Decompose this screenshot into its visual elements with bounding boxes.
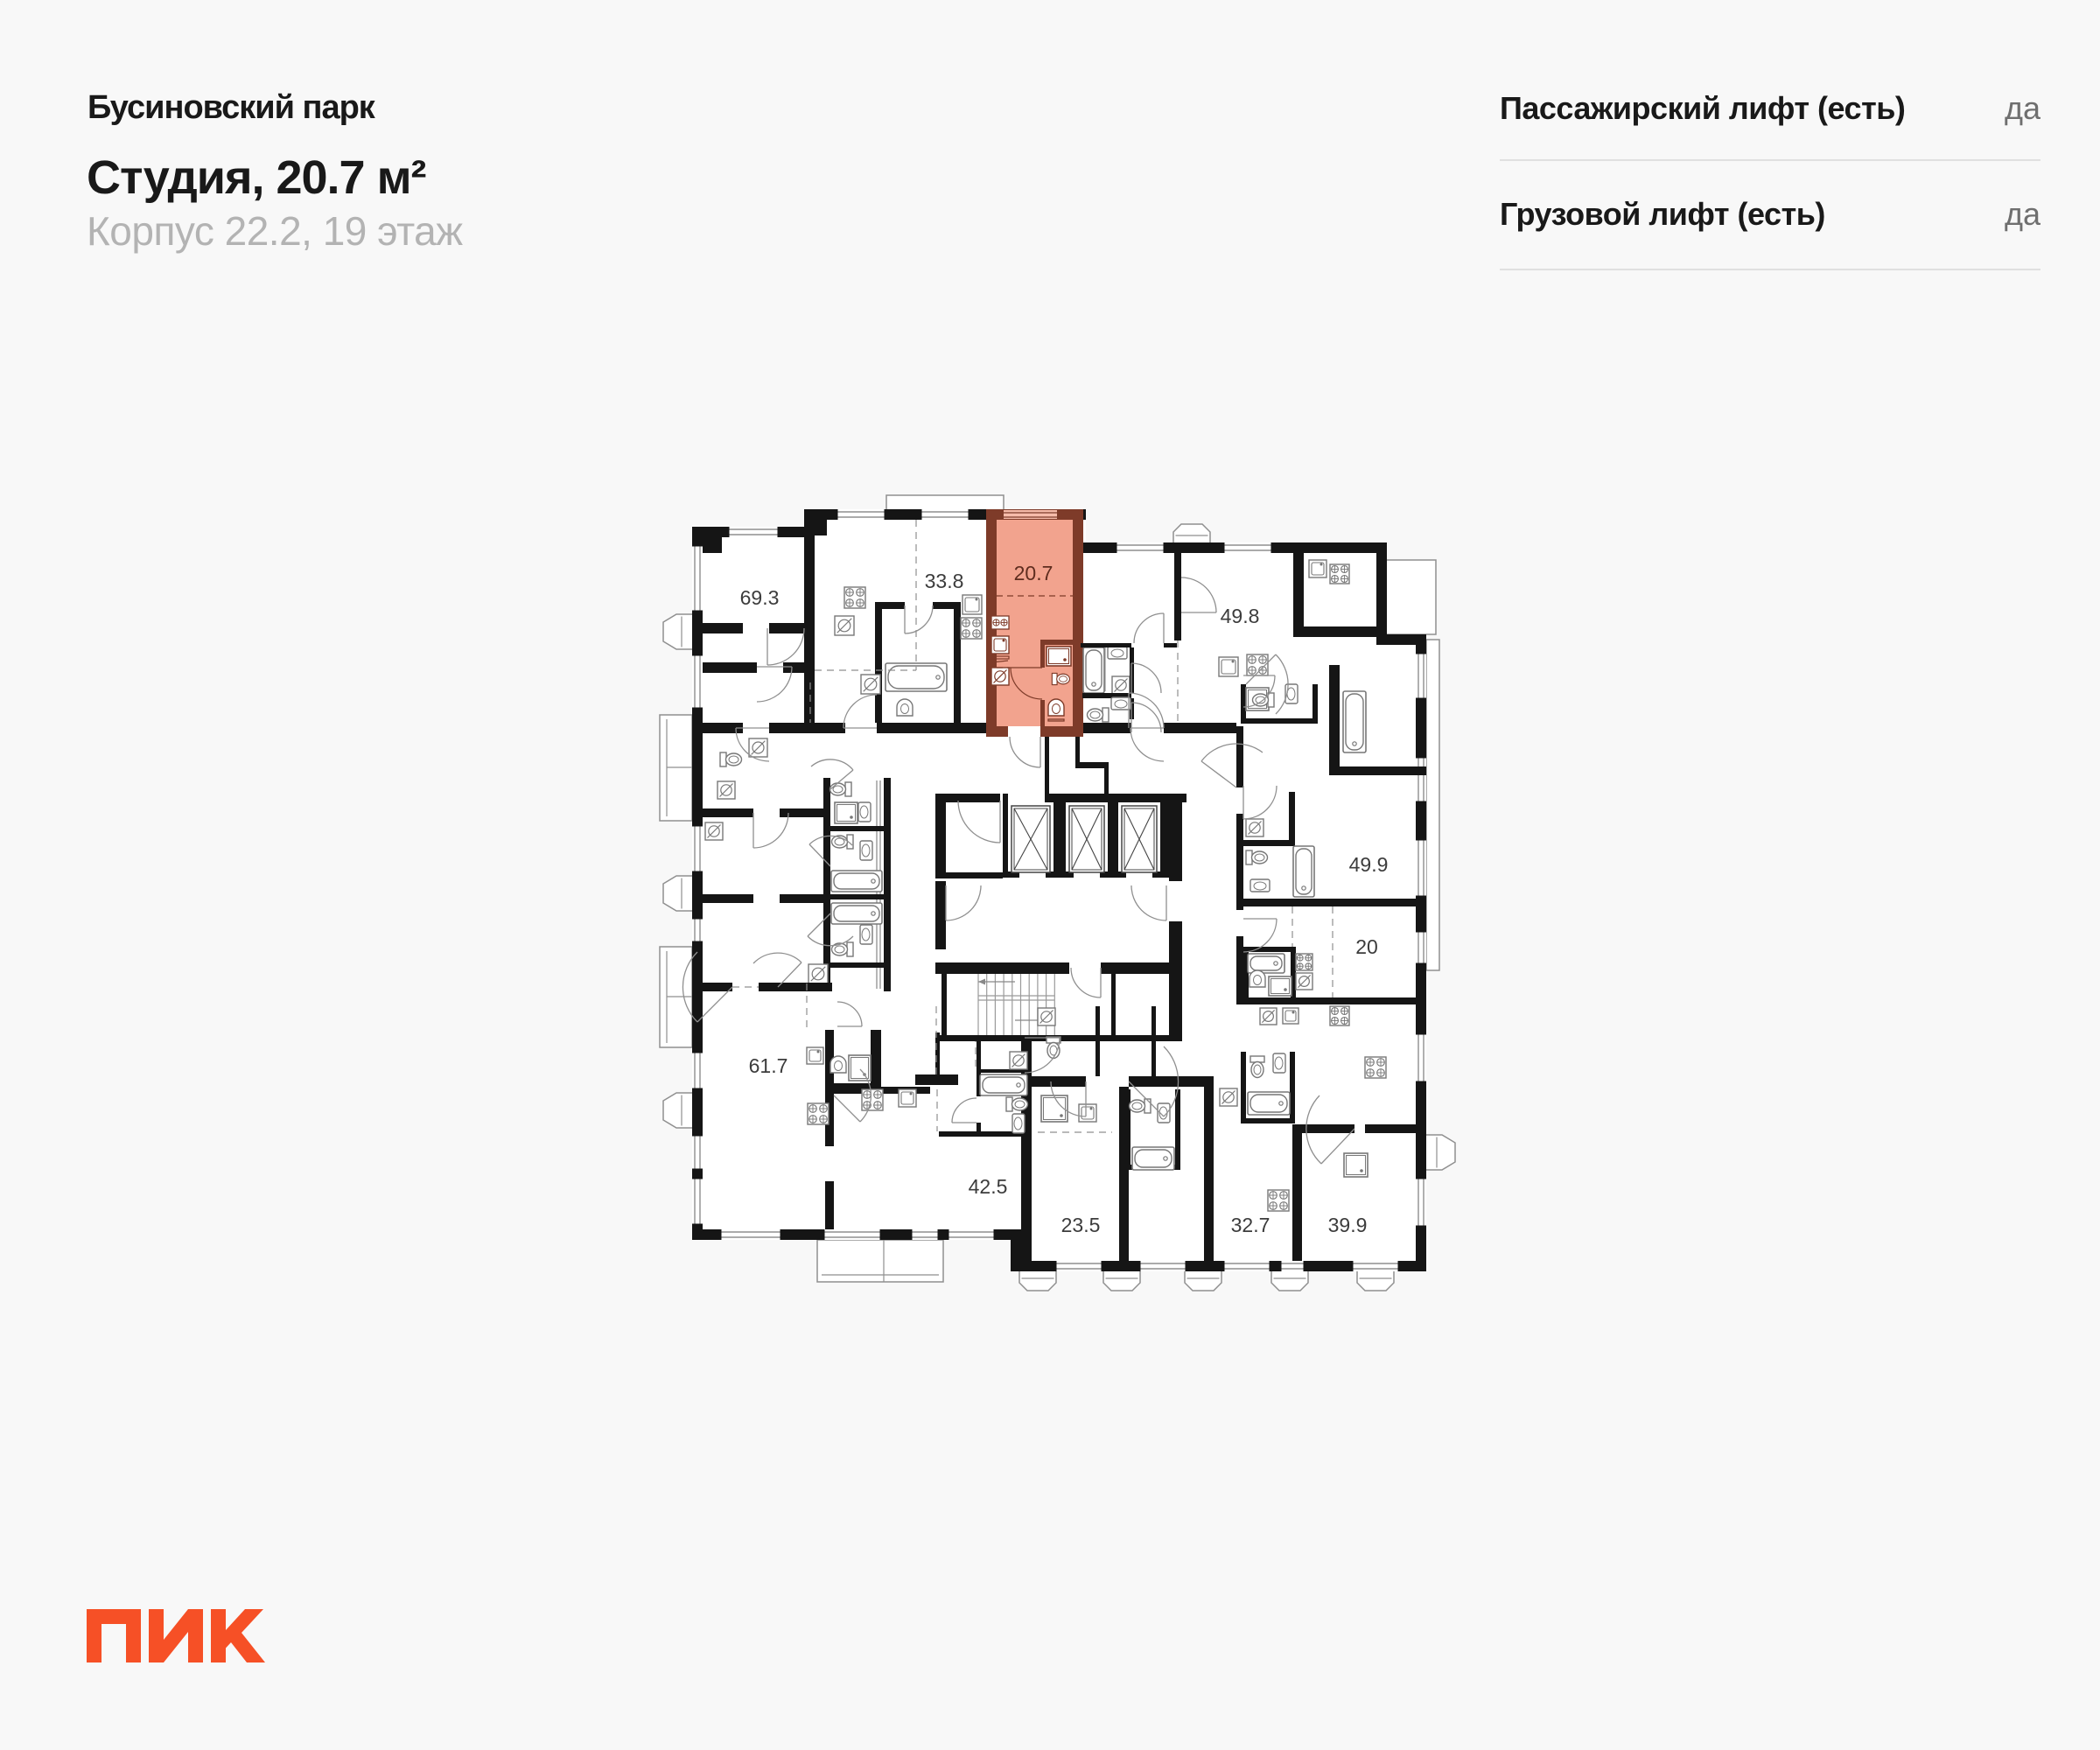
svg-text:23.5: 23.5 — [1061, 1214, 1101, 1236]
svg-text:61.7: 61.7 — [749, 1054, 788, 1077]
svg-text:49.8: 49.8 — [1221, 605, 1260, 627]
svg-text:69.3: 69.3 — [740, 586, 780, 609]
svg-text:39.9: 39.9 — [1328, 1214, 1368, 1236]
svg-text:20: 20 — [1355, 935, 1378, 958]
svg-text:49.9: 49.9 — [1349, 853, 1389, 876]
svg-text:20.7: 20.7 — [1014, 562, 1053, 584]
svg-text:32.7: 32.7 — [1231, 1214, 1270, 1236]
svg-text:33.8: 33.8 — [925, 570, 964, 592]
svg-text:42.5: 42.5 — [969, 1175, 1008, 1198]
